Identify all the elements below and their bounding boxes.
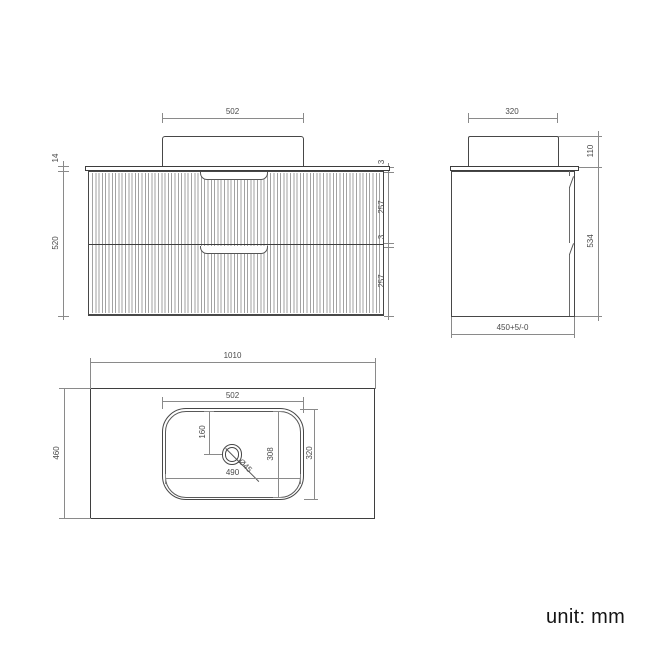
plan-depth-ext-bottom [59, 518, 91, 519]
front-drawer1-height-label: 257 [378, 200, 386, 213]
front-left-tick-bottom [58, 316, 69, 317]
plan-inner-width-dimline [165, 478, 301, 479]
plan-basin-width-label: 502 [226, 392, 239, 400]
side-depth-dimline [451, 334, 575, 335]
plan-depth-label: 460 [53, 446, 61, 459]
front-panel-line-seg1 [569, 171, 570, 176]
plan-depth-ext-top [59, 388, 91, 389]
side-depth-label: 450+5/-0 [497, 324, 529, 332]
side-right-dimline [598, 131, 599, 321]
front-panel-line-seg3 [569, 254, 570, 316]
side-depth-ext-left [451, 317, 452, 338]
drawer2-handle-notch [200, 246, 268, 254]
unit-label: unit: mm [546, 606, 625, 629]
basin-side [468, 136, 559, 167]
plan-inner-width-tick-right [300, 474, 301, 484]
countertop-front [85, 166, 390, 171]
side-cabinet-height-label: 534 [587, 234, 595, 247]
plan-width-label: 1010 [224, 352, 242, 360]
front-right-tick-3 [384, 243, 394, 244]
plan-width-ext-right [375, 358, 376, 389]
plan-basin-depth-ext-top [300, 409, 318, 410]
plan-drain-offset-dimline [209, 411, 210, 454]
front-right-dimline [388, 163, 389, 320]
plan-inner-depth-tick-top [273, 411, 283, 412]
front-basin-width-tick-left [162, 113, 163, 123]
technical-drawing-canvas: 502 14 520 3 257 3 257 [0, 0, 650, 650]
plan-inner-depth-dimline [278, 411, 279, 497]
plan-width-dimline [90, 362, 375, 363]
plan-inner-depth-tick-bottom [273, 497, 283, 498]
plan-drain-offset-label: 160 [199, 425, 207, 438]
plan-inner-width-tick-left [165, 474, 166, 484]
front-left-tick-countertop-bottom [58, 171, 69, 172]
side-ext-basin-top [558, 136, 602, 137]
front-right-tick-2 [384, 172, 394, 173]
side-ext-counter-top [579, 167, 602, 168]
cabinet-side [451, 171, 575, 317]
side-ext-cabinet-bottom [575, 316, 602, 317]
front-drawer2-height-label: 257 [378, 274, 386, 287]
front-basin-width-dimline [162, 118, 304, 119]
basin-front [162, 136, 304, 167]
side-depth-ext-right [574, 317, 575, 338]
plan-basin-width-dimline [162, 401, 304, 402]
drawer1-handle-notch [200, 172, 268, 181]
front-right-tick-4 [384, 247, 394, 248]
plan-inner-depth-label: 308 [267, 447, 275, 460]
plan-depth-dimline [64, 388, 65, 519]
front-top-gap-label: 3 [378, 159, 386, 163]
front-right-tick-5 [384, 316, 394, 317]
side-basin-depth-tick-right [557, 113, 558, 123]
front-left-tick-countertop-top [58, 166, 69, 167]
drawer-divider [89, 244, 383, 246]
cabinet-front [88, 171, 384, 317]
plan-width-ext-left [90, 358, 91, 389]
front-panel-line-seg2 [569, 187, 570, 243]
countertop-side [450, 166, 579, 171]
side-basin-depth-tick-left [468, 113, 469, 123]
plan-basin-depth-label: 320 [306, 446, 314, 459]
plan-drain-offset-tick-top [204, 411, 214, 412]
side-basin-height-label: 110 [587, 144, 595, 157]
front-left-dimline [63, 161, 64, 320]
side-basin-depth-dimline [468, 118, 558, 119]
front-basin-width-tick-right [303, 113, 304, 123]
front-basin-width-label: 502 [226, 108, 239, 116]
plan-basin-width-tick-left [162, 397, 163, 409]
plan-basin-width-tick-right [303, 397, 304, 413]
plan-inner-width-label: 490 [226, 469, 239, 477]
front-cabinet-height-label: 520 [52, 236, 60, 249]
front-middle-gap-label: 3 [378, 234, 386, 238]
plan-basin-depth-ext-bottom [304, 499, 318, 500]
plan-drain-offset-tick-bottom [204, 454, 223, 455]
front-countertop-thickness-label: 14 [52, 153, 60, 162]
side-basin-depth-label: 320 [505, 108, 518, 116]
